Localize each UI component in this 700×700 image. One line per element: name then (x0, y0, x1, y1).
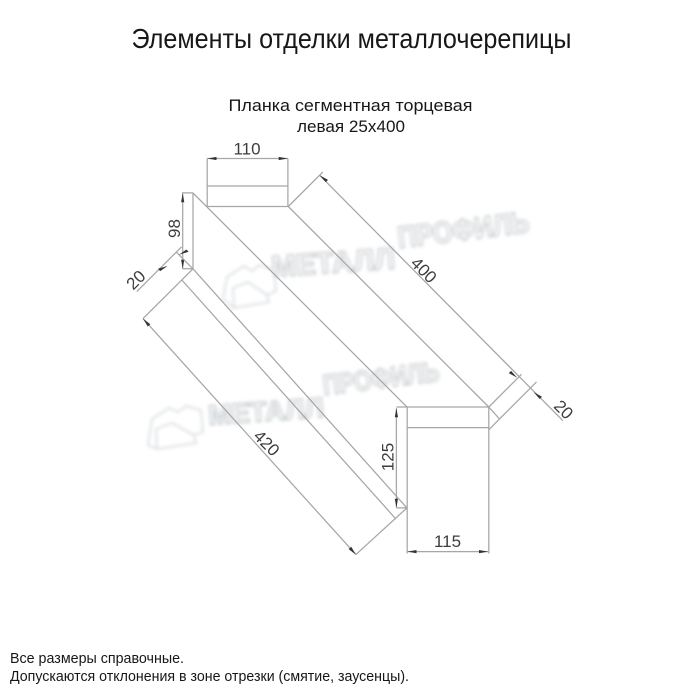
svg-text:110: 110 (233, 140, 260, 159)
svg-text:Все размеры справочные.: Все размеры справочные. (10, 650, 184, 667)
svg-text:115: 115 (434, 532, 461, 551)
svg-text:98: 98 (165, 219, 184, 238)
svg-text:Планка сегментная торцевая: Планка сегментная торцевая (229, 97, 473, 115)
svg-text:левая 25х400: левая 25х400 (297, 118, 405, 136)
svg-text:Элементы отделки металлочерепи: Элементы отделки металлочерепицы (132, 23, 572, 54)
svg-text:125: 125 (378, 443, 397, 471)
svg-text:Допускаются отклонения в зоне: Допускаются отклонения в зоне отрезки (с… (10, 668, 409, 685)
